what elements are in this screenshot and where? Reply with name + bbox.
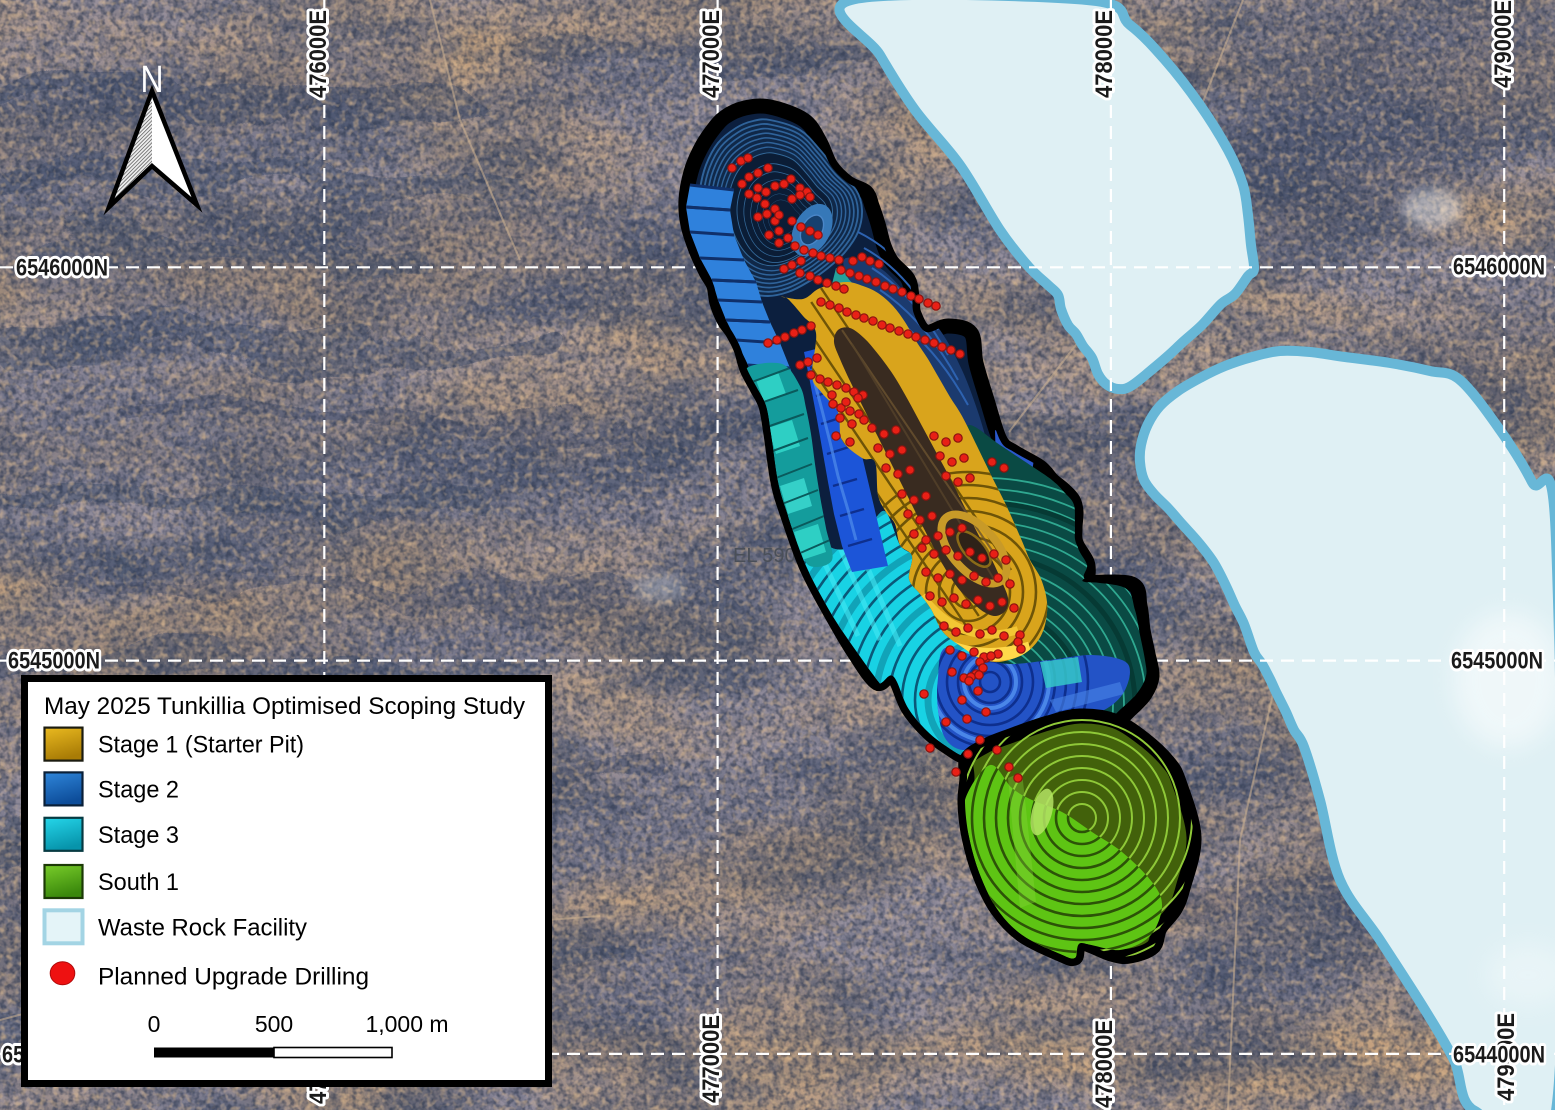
svg-text:6544000N: 6544000N (1453, 1042, 1545, 1069)
svg-text:6545000N: 6545000N (8, 648, 100, 675)
svg-text:Stage 1 (Starter Pit): Stage 1 (Starter Pit) (98, 732, 304, 759)
svg-text:477000E: 477000E (698, 1015, 725, 1103)
svg-text:500: 500 (255, 1011, 293, 1037)
svg-text:478000E: 478000E (1091, 1020, 1118, 1108)
svg-text:Stage 2: Stage 2 (98, 776, 179, 803)
svg-text:1,000 m: 1,000 m (365, 1011, 448, 1037)
svg-text:Planned Upgrade Drilling: Planned Upgrade Drilling (98, 964, 369, 991)
svg-text:0: 0 (148, 1011, 161, 1037)
svg-text:478000E: 478000E (1091, 10, 1118, 98)
svg-text:479000E: 479000E (1490, 0, 1517, 88)
svg-text:Stage 3: Stage 3 (98, 822, 179, 849)
svg-text:May 2025 Tunkillia Optimised S: May 2025 Tunkillia Optimised Scoping Stu… (44, 693, 525, 720)
svg-text:477000E: 477000E (698, 10, 725, 98)
svg-text:476000E: 476000E (305, 10, 332, 98)
svg-text:South 1: South 1 (98, 869, 179, 896)
svg-text:Waste Rock Facility: Waste Rock Facility (98, 914, 307, 941)
svg-text:6546000N: 6546000N (1453, 254, 1545, 281)
svg-text:6546000N: 6546000N (16, 255, 108, 282)
svg-text:6545000N: 6545000N (1451, 648, 1543, 675)
